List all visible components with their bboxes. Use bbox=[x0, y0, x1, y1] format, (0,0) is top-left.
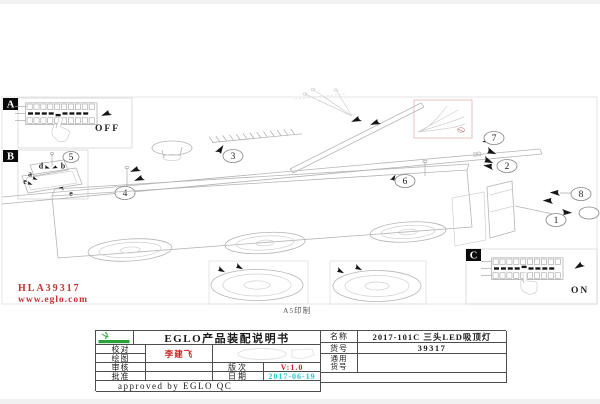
review-label: 审核 bbox=[96, 363, 146, 372]
sku-label: 货号 bbox=[321, 343, 358, 354]
arrow-icon bbox=[350, 115, 362, 124]
instruction-sheet-page: A OFF B 5 d b a e e bbox=[0, 0, 600, 404]
date-value: 2017-06-19 bbox=[264, 372, 321, 381]
section-a-panel: A OFF bbox=[3, 98, 132, 148]
stamp-cell bbox=[213, 345, 321, 363]
print-note: A5印制 bbox=[283, 305, 311, 316]
callout-3: 3 bbox=[231, 152, 236, 162]
right-empty-row bbox=[321, 373, 507, 383]
part-label-b: b bbox=[61, 162, 66, 171]
date-label: 日期 bbox=[213, 372, 264, 381]
rail-screw bbox=[423, 160, 427, 176]
part-label-d: d bbox=[39, 162, 44, 171]
end-cap-part bbox=[579, 207, 599, 219]
arrow-icon bbox=[133, 174, 145, 183]
approved-note: approved by EGLO QC bbox=[96, 381, 321, 392]
end-bracket bbox=[452, 181, 553, 246]
arrow-icon bbox=[217, 266, 227, 274]
spotlight-detail-1 bbox=[209, 261, 308, 304]
arrow-icon bbox=[550, 189, 561, 196]
bracket-inner bbox=[26, 171, 77, 190]
support-arm bbox=[290, 88, 424, 173]
stamp-watermark bbox=[214, 346, 320, 362]
callout-5: 5 bbox=[69, 153, 74, 163]
arrow-icon bbox=[129, 165, 141, 174]
article-code-block: HLA39317 www.eglo.com bbox=[18, 284, 88, 306]
callout-7: 7 bbox=[492, 134, 497, 144]
sku-value: 39317 bbox=[358, 343, 507, 354]
arrow-icon bbox=[482, 156, 494, 166]
section-c-label: C bbox=[470, 251, 478, 262]
dip-switch-strip-on bbox=[481, 258, 563, 280]
approve-label: 批准 bbox=[96, 372, 146, 381]
review-value bbox=[146, 363, 213, 372]
section-b-panel: B 5 d b a e e bbox=[3, 150, 88, 199]
canopy-cup bbox=[152, 141, 192, 161]
part-label-e-top: e bbox=[23, 177, 27, 186]
arrow-icon bbox=[561, 209, 572, 216]
approve-value bbox=[146, 372, 213, 381]
on-label: ON bbox=[571, 286, 589, 296]
lamp-head-2 bbox=[224, 230, 305, 256]
mounting-screw bbox=[125, 166, 129, 187]
arrow-icon bbox=[485, 147, 497, 157]
common-sku-label: 通用 货号 bbox=[321, 354, 358, 373]
section-c-panel: C ON bbox=[466, 249, 597, 304]
part-arrow-icon bbox=[51, 165, 58, 170]
name-label: 名称 bbox=[321, 331, 358, 343]
common-sku-value bbox=[358, 354, 507, 373]
sheet-title: EGLO产品装配说明书 bbox=[134, 331, 321, 345]
draft-label: 绘图 bbox=[96, 354, 146, 363]
part-arrow-icon bbox=[44, 165, 51, 170]
title-block: EGLO产品装配说明书 名称 2017-101C 三头LED吸顶灯 货号 393… bbox=[95, 330, 506, 391]
dip-switch-strip-off bbox=[15, 103, 97, 125]
section-b-label: B bbox=[7, 152, 14, 163]
part-label-a: a bbox=[28, 170, 32, 179]
callout-6: 6 bbox=[403, 177, 408, 187]
callout-8: 8 bbox=[579, 190, 584, 200]
logo-cell bbox=[96, 331, 134, 345]
doc-code: HLA39317 bbox=[18, 284, 88, 294]
arrow-icon bbox=[543, 197, 554, 204]
eglo-supplier-logo bbox=[97, 331, 133, 344]
common-sku-label-line2: 货号 bbox=[331, 363, 348, 371]
drafter-name: 李建飞 bbox=[146, 345, 213, 363]
product-name: 2017-101C 三头LED吸顶灯 bbox=[358, 331, 507, 343]
mounting-rail bbox=[2, 149, 542, 204]
lamp-head-1 bbox=[87, 236, 172, 263]
ceiling-hatch bbox=[209, 129, 302, 143]
off-label: OFF bbox=[95, 124, 120, 134]
off-arrow-icon bbox=[100, 109, 112, 118]
arrow-icon bbox=[336, 267, 346, 275]
callout-1: 1 bbox=[554, 216, 559, 226]
section-a-label: A bbox=[7, 100, 15, 111]
version-value: V:1.0 bbox=[264, 363, 321, 372]
arrow-icon bbox=[483, 162, 494, 170]
version-label: 版次 bbox=[213, 363, 264, 372]
spotlight-detail-2 bbox=[330, 261, 426, 304]
callout-2: 2 bbox=[505, 162, 510, 172]
check-label: 校对 bbox=[96, 345, 146, 354]
on-arrow-icon bbox=[573, 261, 585, 271]
website-link: www.eglo.com bbox=[18, 296, 88, 306]
callout-4: 4 bbox=[123, 189, 128, 199]
